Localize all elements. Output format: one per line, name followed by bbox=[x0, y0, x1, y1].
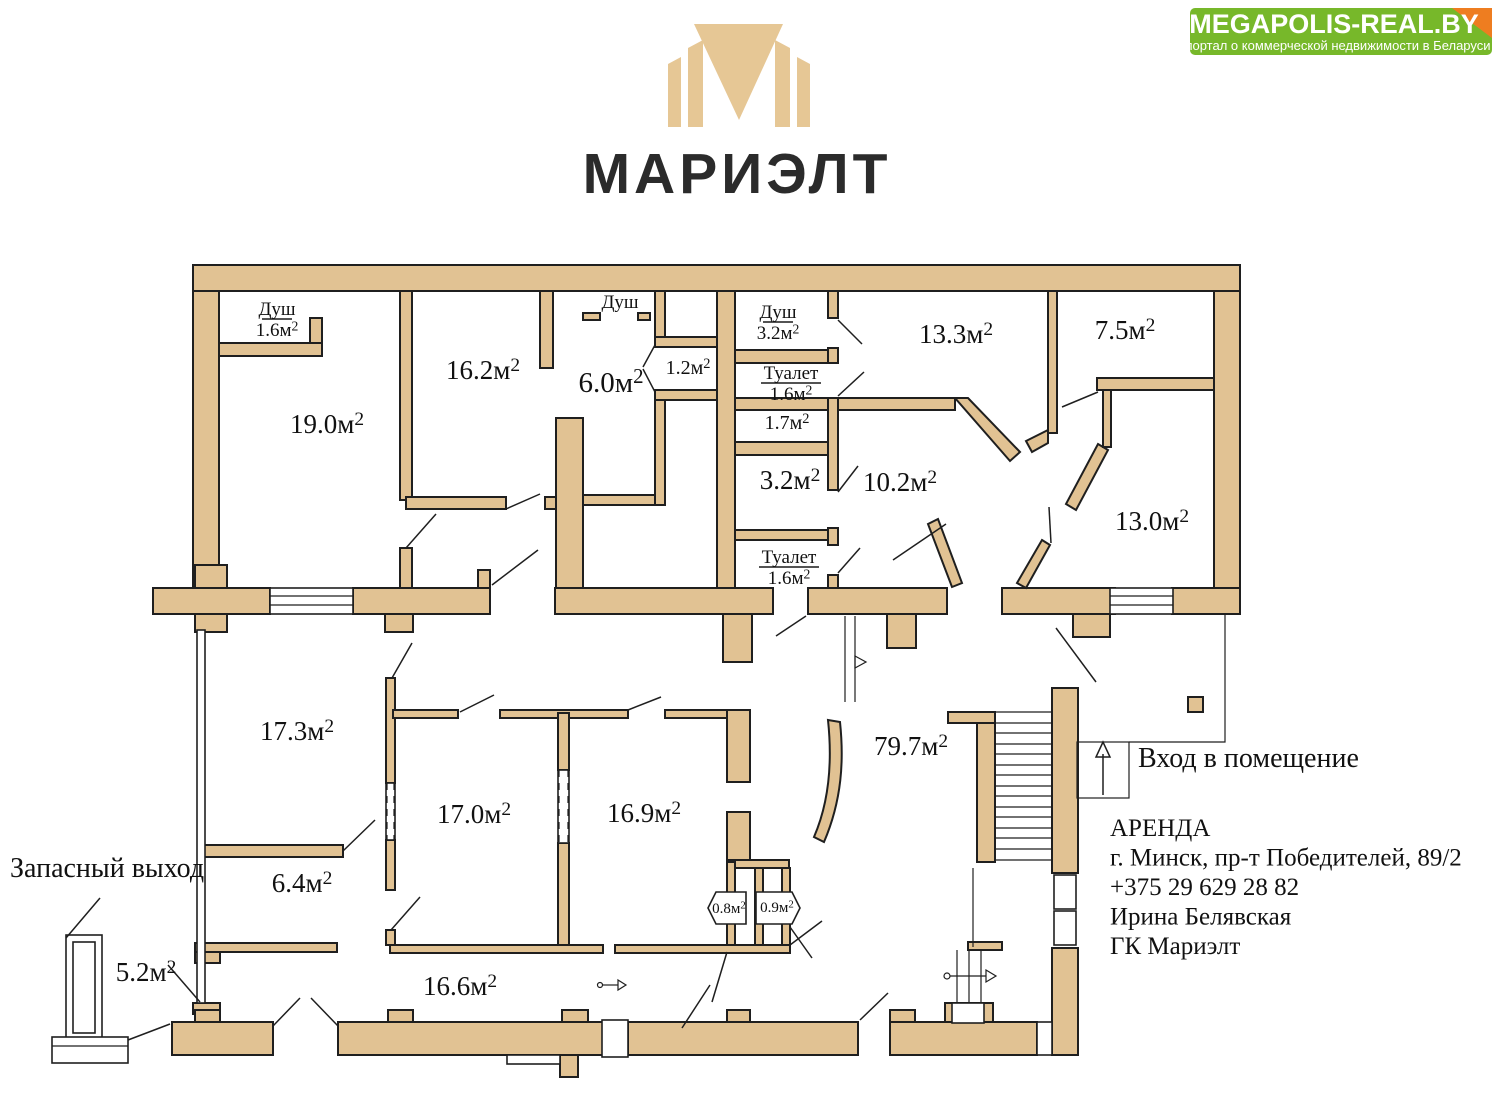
contact-line-0: АРЕНДА bbox=[1110, 815, 1210, 842]
corridor-passage-marker bbox=[845, 616, 855, 702]
walls-layer bbox=[1073, 614, 1110, 637]
banner-subtitle: портал о коммерческой недвижимости в Бел… bbox=[1185, 38, 1490, 53]
walls-layer bbox=[1052, 688, 1078, 873]
shower-1-name: Душ bbox=[258, 299, 295, 320]
walls-layer bbox=[310, 318, 322, 343]
walls-layer bbox=[386, 840, 395, 890]
walls-layer bbox=[628, 1022, 858, 1055]
passage-arrow-icon bbox=[598, 980, 627, 990]
curved-door-leaf bbox=[814, 720, 842, 842]
logo-m-monogram-icon bbox=[668, 57, 681, 127]
walls-layer bbox=[338, 1022, 603, 1055]
walls-layer bbox=[717, 291, 735, 588]
room-label-room-1-2: 1.2м2 bbox=[666, 356, 711, 379]
corridor-passage-marker bbox=[855, 656, 866, 668]
door-leaves-layer bbox=[712, 952, 727, 1002]
wc-2-area: 1.6м2 bbox=[768, 566, 811, 589]
room-label-room-1-7: 1.7м2 bbox=[765, 411, 810, 434]
window bbox=[1110, 588, 1173, 614]
room-label-room-6-4: 2 bbox=[323, 868, 333, 889]
walls-layer bbox=[828, 398, 838, 490]
contact-block: АРЕНДАг. Минск, пр-т Победителей, 89/2+3… bbox=[1110, 815, 1462, 960]
staircase bbox=[944, 712, 1052, 1003]
room-label-room-16-6: 16.6м2 bbox=[423, 971, 497, 1001]
wc-2-name: Туалет bbox=[762, 547, 817, 568]
room-label-room-6-0: 6.0м2 bbox=[578, 364, 643, 399]
stair-direction-arrow-icon bbox=[986, 970, 996, 982]
door-leaves-layer bbox=[838, 466, 858, 492]
banner-title: MEGAPOLIS-REAL.BY bbox=[1189, 9, 1479, 39]
passage-arrow-icon bbox=[598, 983, 603, 988]
room-label-room-3-2: 3.2м2 bbox=[760, 465, 821, 495]
door-leaves-layer bbox=[273, 998, 338, 1026]
doorway-passage bbox=[602, 1020, 628, 1057]
wc-2-area: 2 bbox=[803, 566, 810, 581]
walls-layer bbox=[955, 398, 1020, 461]
room-labels-layer: 19.0м216.2м26.0м21.2м21.7м23.2м210.2м213… bbox=[116, 315, 1189, 1001]
room-label-room-6-0: 6.0м bbox=[578, 367, 633, 399]
room-label-room-6-0: 2 bbox=[633, 364, 643, 388]
walls-layer bbox=[727, 860, 789, 868]
room-label-room-16-9: 2 bbox=[671, 798, 681, 819]
room-label-room-16-9: 16.9м2 bbox=[607, 798, 681, 828]
logo-m-monogram-icon bbox=[668, 24, 810, 127]
walls-layer bbox=[828, 291, 838, 318]
room-label-room-7-5: 7.5м2 bbox=[1095, 315, 1156, 345]
walls-layer bbox=[388, 1010, 413, 1022]
walls-layer bbox=[153, 265, 1240, 1077]
shower-3-area: 3.2м2 bbox=[757, 321, 800, 344]
walls-layer bbox=[353, 588, 490, 614]
walls-layer bbox=[219, 343, 322, 356]
walls-layer bbox=[735, 530, 828, 540]
walls-layer bbox=[400, 291, 412, 500]
room-label-room-19-0: 19.0м bbox=[290, 409, 354, 439]
walls-layer bbox=[545, 497, 556, 509]
door-leaves-layer bbox=[460, 695, 494, 712]
door-leaves-layer bbox=[838, 372, 864, 396]
room-label-room-79-7: 79.7м bbox=[874, 731, 938, 761]
walls-layer bbox=[928, 519, 962, 587]
stair-steps bbox=[995, 712, 1052, 860]
room-label-room-16-2: 16.2м bbox=[446, 355, 510, 385]
dashed-wall-section bbox=[558, 770, 569, 843]
walls-layer bbox=[727, 710, 750, 782]
contact-line-4: ГК Мариэлт bbox=[1110, 933, 1240, 960]
wc-1-area: 1.6м bbox=[770, 384, 806, 405]
stair-direction-arrow-icon bbox=[944, 970, 996, 982]
walls-layer bbox=[556, 418, 583, 588]
walls-layer bbox=[890, 1010, 915, 1022]
room-label-room-1-2: 2 bbox=[703, 356, 710, 372]
room-label-room-13-0: 2 bbox=[1179, 506, 1189, 527]
fixture-labels-layer: Душ1.6м2ДушДуш3.2м2Туалет1.6м2Туалет1.6м… bbox=[256, 292, 821, 589]
room-label-room-5-2: 5.2м bbox=[116, 957, 167, 987]
shower-1-area: 1.6м2 bbox=[256, 318, 299, 341]
logo-m-monogram-icon bbox=[694, 24, 783, 120]
door-panel bbox=[1037, 1022, 1052, 1055]
walls-layer bbox=[723, 614, 752, 662]
walls-layer bbox=[948, 712, 995, 723]
room-label-room-0-8: 0.8м bbox=[712, 901, 741, 917]
shower-3-area: 2 bbox=[792, 321, 799, 336]
walls-layer bbox=[153, 588, 270, 614]
walls-layer bbox=[583, 313, 600, 320]
room-label-room-1-7: 2 bbox=[802, 411, 809, 427]
walls-layer bbox=[735, 350, 828, 363]
walls-layer bbox=[977, 723, 995, 862]
stair-direction-arrow-icon bbox=[944, 973, 950, 979]
exterior-step bbox=[507, 1055, 560, 1064]
contact-line-2: +375 29 629 28 82 bbox=[1110, 874, 1299, 901]
room-label-room-7-5: 2 bbox=[1146, 315, 1156, 336]
door-leaves-layer bbox=[492, 550, 538, 585]
walls-layer bbox=[1048, 291, 1057, 433]
walls-layer bbox=[406, 497, 506, 509]
walls-layer bbox=[665, 710, 728, 718]
walls-layer bbox=[558, 713, 569, 770]
room-label-room-17-3: 2 bbox=[324, 716, 334, 737]
walls-layer bbox=[400, 548, 412, 588]
door-leaves-layer bbox=[1049, 507, 1051, 543]
walls-layer bbox=[1214, 291, 1240, 588]
walls-layer bbox=[828, 348, 838, 363]
walls-layer bbox=[386, 678, 395, 783]
windows-doors-layer bbox=[197, 588, 1173, 1064]
room-label-room-19-0: 19.0м2 bbox=[290, 409, 364, 439]
walls-layer bbox=[887, 614, 916, 648]
entrance-arrow-icon bbox=[1096, 742, 1110, 795]
porch-column bbox=[1188, 697, 1203, 712]
walls-layer bbox=[193, 291, 219, 588]
door-leaves-layer bbox=[392, 643, 412, 678]
shower-3-area: 3.2м bbox=[757, 323, 793, 344]
room-label-room-17-3: 17.3м2 bbox=[260, 716, 334, 746]
room-label-room-5-2: 2 bbox=[167, 957, 177, 978]
walls-layer bbox=[1002, 588, 1115, 614]
room-label-room-13-0: 13.0м2 bbox=[1115, 506, 1189, 536]
shower-2-name: Душ bbox=[601, 292, 638, 313]
walls-layer bbox=[558, 843, 569, 945]
walls-layer bbox=[828, 528, 838, 545]
walls-layer bbox=[386, 930, 395, 945]
walls-layer bbox=[735, 442, 828, 455]
walls-layer bbox=[727, 1010, 750, 1022]
walls-layer bbox=[655, 390, 717, 400]
wc-2-area: 1.6м bbox=[768, 568, 804, 589]
door-leaves-layer bbox=[343, 820, 375, 851]
shower-1-area: 2 bbox=[291, 318, 298, 333]
logo-m-monogram-icon bbox=[688, 40, 703, 127]
walls-layer bbox=[890, 1022, 1037, 1055]
room-label-room-0-9: 2 bbox=[788, 898, 793, 910]
door-leaves-layer bbox=[406, 514, 436, 548]
passage-arrow-icon bbox=[618, 980, 626, 990]
window bbox=[270, 588, 353, 614]
walls-layer bbox=[828, 575, 838, 588]
page: MEGAPOLIS-REAL.BY портал о коммерческой … bbox=[0, 0, 1500, 1099]
corridor-passage-marker bbox=[845, 616, 866, 702]
room-label-room-7-5: 7.5м bbox=[1095, 315, 1146, 345]
shower-1-area: 1.6м bbox=[256, 320, 292, 341]
room-label-room-16-2: 16.2м2 bbox=[446, 355, 520, 385]
contact-line-3: Ирина Белявская bbox=[1110, 904, 1292, 931]
room-label-room-3-2: 2 bbox=[811, 465, 821, 486]
room-label-room-1-2: 1.2м bbox=[666, 357, 704, 379]
floor-plan-image: MEGAPOLIS-REAL.BY портал о коммерческой … bbox=[0, 0, 1500, 1099]
walls-layer bbox=[478, 570, 490, 588]
walls-layer bbox=[1172, 588, 1240, 614]
logo-m-monogram-icon bbox=[797, 57, 810, 127]
walls-layer bbox=[172, 1022, 273, 1055]
walls-layer bbox=[808, 588, 947, 614]
room-label-room-17-0: 17.0м bbox=[437, 799, 501, 829]
door-leaves-layer bbox=[838, 320, 862, 344]
logo-wordmark: МАРИЭЛТ bbox=[583, 142, 892, 206]
walls-layer bbox=[638, 313, 650, 320]
room-label-room-6-4: 6.4м bbox=[272, 868, 323, 898]
room-label-room-13-0: 13.0м bbox=[1115, 506, 1179, 536]
walls-layer bbox=[1103, 390, 1111, 447]
contact-line-1: г. Минск, пр-т Победителей, 89/2 bbox=[1110, 845, 1462, 872]
room-label-room-1-7: 1.7м bbox=[765, 412, 803, 434]
room-label-room-3-2: 3.2м bbox=[760, 465, 811, 495]
walls-layer bbox=[727, 812, 750, 862]
walls-layer bbox=[562, 1010, 588, 1022]
door-leaves-layer bbox=[628, 697, 661, 710]
room-label-room-16-2: 2 bbox=[510, 355, 520, 376]
walls-layer bbox=[1017, 540, 1050, 588]
wc-1-area: 2 bbox=[805, 382, 812, 397]
room-label-room-19-0: 2 bbox=[354, 409, 364, 430]
room-label-room-13-3: 13.3м2 bbox=[919, 319, 993, 349]
room-label-room-6-4: 6.4м2 bbox=[272, 868, 333, 898]
room-label-room-5-2: 5.2м2 bbox=[116, 957, 177, 987]
thin-partition-wall bbox=[197, 630, 205, 1003]
room-label-room-79-7: 79.7м2 bbox=[874, 731, 948, 761]
walls-layer bbox=[385, 614, 413, 632]
logo-m-monogram-icon bbox=[775, 40, 790, 127]
room-label-room-10-2: 2 bbox=[927, 467, 937, 488]
marielt-logo: МАРИЭЛТ bbox=[583, 24, 892, 206]
walls-layer bbox=[195, 943, 337, 952]
room-label-room-10-2: 10.2м bbox=[863, 467, 927, 497]
door-leaves-layer bbox=[643, 345, 655, 392]
room-label-room-17-0: 2 bbox=[501, 799, 511, 820]
room-label-room-16-9: 16.9м bbox=[607, 798, 671, 828]
walls-layer bbox=[560, 1055, 578, 1077]
walls-layer bbox=[193, 265, 1240, 291]
walls-layer bbox=[1052, 948, 1078, 1055]
room-label-room-17-3: 17.3м bbox=[260, 716, 324, 746]
walls-layer bbox=[393, 710, 458, 718]
fire-escape-stairs bbox=[52, 1037, 128, 1063]
room-label-room-16-6: 16.6м bbox=[423, 971, 487, 1001]
room-label-room-79-7: 2 bbox=[938, 731, 948, 752]
door-leaves-layer bbox=[1062, 392, 1098, 407]
porch-outline bbox=[1129, 614, 1225, 742]
room-label-room-0-9: 0.9м bbox=[760, 900, 789, 916]
room-label-room-10-2: 10.2м2 bbox=[863, 467, 937, 497]
door-leaves-layer bbox=[506, 494, 540, 509]
walls-layer bbox=[583, 495, 655, 505]
fire-escape-stairs bbox=[73, 942, 95, 1033]
walls-layer bbox=[1066, 444, 1108, 510]
door-leaves-layer bbox=[776, 616, 806, 636]
stair-door-panel bbox=[1054, 875, 1076, 909]
stair-door-panel bbox=[1054, 911, 1076, 945]
entrance-label: Вход в помещение bbox=[1138, 743, 1359, 774]
shower-3-name: Душ bbox=[759, 302, 796, 323]
walls-layer bbox=[655, 337, 717, 347]
door-leaves-layer bbox=[838, 548, 860, 573]
walls-layer bbox=[555, 588, 773, 614]
room-label-room-0-8: 2 bbox=[740, 899, 745, 911]
room-label-room-17-0: 17.0м2 bbox=[437, 799, 511, 829]
walls-layer bbox=[1026, 430, 1048, 452]
door-leaves-layer bbox=[391, 897, 420, 930]
walls-layer bbox=[615, 945, 790, 953]
small-stair-landing bbox=[952, 1003, 984, 1023]
room-label-room-13-3: 13.3м bbox=[919, 319, 983, 349]
walls-layer bbox=[390, 945, 603, 953]
walls-layer bbox=[540, 291, 553, 368]
megapolis-banner: MEGAPOLIS-REAL.BY портал о коммерческой … bbox=[1185, 8, 1492, 55]
wc-1-name: Туалет bbox=[764, 363, 819, 384]
emergency-exit-label: Запасный выход bbox=[10, 853, 204, 884]
walls-layer bbox=[1097, 378, 1214, 390]
room-label-room-13-3: 2 bbox=[983, 319, 993, 340]
walls-layer bbox=[655, 400, 665, 505]
walls-layer bbox=[203, 845, 343, 857]
walls-layer bbox=[838, 398, 955, 410]
walls-layer bbox=[195, 1010, 220, 1022]
room-label-room-16-6: 2 bbox=[487, 971, 497, 992]
